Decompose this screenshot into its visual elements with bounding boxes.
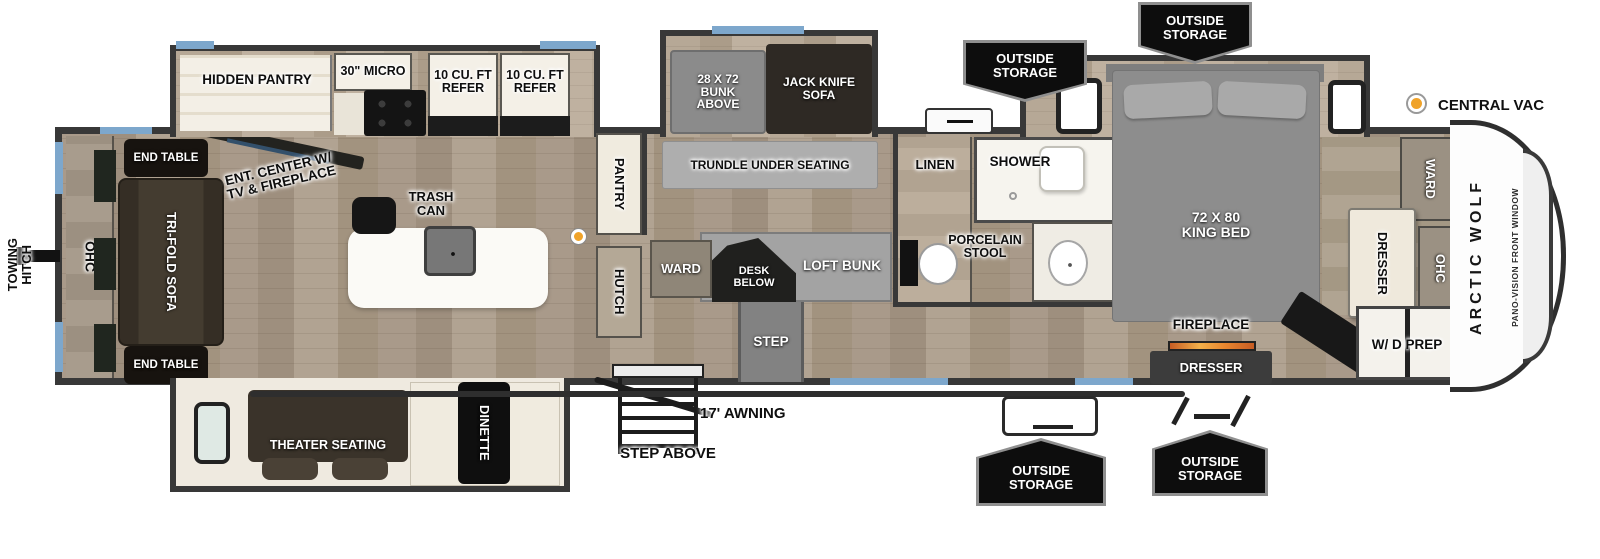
jack-knife-sofa-label: JACK KNIFE SOFA bbox=[778, 76, 860, 101]
theater-footrest bbox=[332, 458, 388, 480]
shower-label-wrap: SHOWER bbox=[980, 150, 1060, 174]
entry-platform bbox=[612, 364, 704, 378]
outside-storage-label: OUTSIDE STORAGE bbox=[998, 464, 1084, 493]
end-table-top: END TABLE bbox=[124, 139, 208, 177]
outside-storage-badge-bottom-2: OUTSIDE STORAGE bbox=[1152, 430, 1268, 496]
porcelain-stool-text: PORCELAIN STOOL bbox=[938, 234, 1032, 260]
outside-storage-badge-bottom-1: OUTSIDE STORAGE bbox=[976, 438, 1106, 506]
tri-fold-sofa: TRI-FOLD SOFA bbox=[118, 178, 224, 346]
fireplace-label: FIREPLACE bbox=[1152, 318, 1270, 332]
linen-label-wrap: LINEN bbox=[898, 150, 972, 180]
step-label: STEP bbox=[753, 335, 788, 349]
bunk-ward: WARD bbox=[650, 240, 712, 298]
island-sink bbox=[424, 226, 476, 276]
theater-label-wrap: THEATER SEATING bbox=[248, 434, 408, 458]
step-above-label: STEP ABOVE bbox=[608, 446, 728, 462]
loft-bunk-label-wrap: LOFT BUNK bbox=[796, 248, 888, 284]
fireplace-text: FIREPLACE bbox=[1152, 318, 1270, 332]
top-wall-window bbox=[100, 127, 152, 134]
floorplan-diagram: TOWING HITCH OHC END TABLE END TABLE TRI… bbox=[0, 0, 1600, 559]
fireplace-insert bbox=[1168, 341, 1256, 351]
ohc-door-panel bbox=[94, 238, 116, 290]
outside-storage-badge-face: OUTSIDE STORAGE bbox=[1141, 5, 1249, 61]
central-vac-label: CENTRAL VAC bbox=[1438, 97, 1568, 114]
interior-wall bbox=[642, 133, 647, 235]
front-window-label-wrap: PANO-VISION FRONT WINDOW bbox=[1506, 150, 1524, 364]
bed-pillow bbox=[1217, 81, 1307, 120]
front-window-band bbox=[1523, 149, 1553, 363]
trash-can bbox=[352, 197, 396, 234]
storage-door-mark bbox=[1230, 395, 1250, 427]
linen-label: LINEN bbox=[916, 158, 955, 172]
exterior-storage-door bbox=[1002, 396, 1098, 436]
towing-hitch-label: TOWING HITCH bbox=[0, 210, 40, 320]
king-bed-label: 72 X 80 KING BED bbox=[1180, 210, 1252, 239]
microwave: 30" MICRO bbox=[334, 53, 412, 91]
vanity-sink bbox=[1048, 240, 1088, 286]
brand-label-wrap: ARCTIC WOLF bbox=[1462, 135, 1492, 379]
bedroom-dresser: DRESSER bbox=[1348, 208, 1416, 318]
hutch-counter: HUTCH bbox=[596, 246, 642, 338]
trundle: TRUNDLE UNDER SEATING bbox=[662, 141, 878, 189]
trash-can-label: TRASH CAN bbox=[398, 190, 464, 217]
step-above-text: STEP ABOVE bbox=[608, 446, 728, 462]
hidden-pantry-label-wrap: HIDDEN PANTRY bbox=[182, 58, 332, 102]
towing-hitch-text-2: HITCH bbox=[20, 245, 34, 285]
end-table-bottom-label: END TABLE bbox=[134, 359, 199, 371]
rear-wall-window bbox=[55, 142, 63, 194]
bedroom-ward-label: WARD bbox=[1423, 159, 1437, 199]
rear-wall-window bbox=[55, 322, 63, 372]
microwave-label: 30" MICRO bbox=[341, 65, 406, 78]
central-vac-text: CENTRAL VAC bbox=[1438, 97, 1568, 114]
front-window-label: PANO-VISION FRONT WINDOW bbox=[1510, 188, 1520, 327]
bathroom-wall-bottom bbox=[893, 302, 1119, 307]
theater-footrest bbox=[262, 458, 318, 480]
outside-storage-badge-face: OUTSIDE STORAGE bbox=[1155, 433, 1265, 493]
king-bed-label-wrap: 72 X 80 KING BED bbox=[1176, 190, 1256, 260]
theater-sofa: THEATER SEATING bbox=[248, 390, 408, 462]
shower-drain bbox=[1009, 192, 1017, 200]
pantry-label: PANTRY bbox=[612, 158, 626, 210]
jack-knife-sofa: JACK KNIFE SOFA bbox=[766, 44, 872, 134]
tri-fold-sofa-label: TRI-FOLD SOFA bbox=[164, 212, 178, 312]
refrigerator-1-door bbox=[428, 116, 498, 136]
exterior-storage-door bbox=[925, 108, 993, 134]
kitchen-slide-window bbox=[176, 41, 214, 49]
hidden-pantry-label: HIDDEN PANTRY bbox=[202, 73, 312, 87]
bunk-above-label: 28 X 72 BUNK ABOVE bbox=[686, 73, 750, 111]
central-vac-outlet-dot bbox=[571, 229, 586, 244]
refrigerator-2-label: 10 CU. FT REFER bbox=[502, 69, 568, 95]
hutch-label: HUTCH bbox=[612, 269, 626, 315]
bunk-slide-window bbox=[712, 26, 804, 34]
storage-door-mark bbox=[1171, 397, 1189, 426]
storage-door-handle bbox=[1194, 414, 1230, 419]
kitchen-slide-window bbox=[540, 41, 596, 49]
theater-seating-label: THEATER SEATING bbox=[270, 439, 386, 452]
step-corridor: STEP bbox=[738, 302, 804, 382]
desk-below-label: DESK BELOW bbox=[726, 266, 782, 289]
cooktop bbox=[364, 90, 426, 136]
bedroom-dresser-label: DRESSER bbox=[1375, 232, 1389, 295]
ohc-door-panel bbox=[94, 150, 116, 202]
refrigerator-2: 10 CU. FT REFER bbox=[500, 53, 570, 136]
central-vac-dot bbox=[1408, 95, 1425, 112]
pantry-cabinet: PANTRY bbox=[596, 133, 642, 235]
outside-storage-label: OUTSIDE STORAGE bbox=[982, 52, 1068, 81]
storage-door-handle bbox=[1033, 425, 1073, 429]
slide-window bbox=[194, 402, 230, 464]
storage-door-handle bbox=[947, 120, 973, 123]
awning-text: 17' AWNING bbox=[700, 406, 820, 422]
bath-vanity bbox=[1032, 222, 1116, 302]
outside-storage-badge-face: OUTSIDE STORAGE bbox=[979, 441, 1103, 503]
dinette-table: DINETTE bbox=[458, 382, 510, 484]
refrigerator-2-door bbox=[500, 116, 570, 136]
wd-prep-text: W/ D PREP bbox=[1348, 338, 1466, 352]
awning-label: 17' AWNING bbox=[700, 406, 820, 422]
bedroom-ohc-label: OHC bbox=[1433, 254, 1447, 283]
bottom-wall-window bbox=[830, 378, 948, 385]
dinette-label: DINETTE bbox=[477, 405, 491, 461]
front-dresser-label: DRESSER bbox=[1180, 361, 1243, 375]
trash-can-text: TRASH CAN bbox=[398, 190, 464, 217]
bunk-ward-label: WARD bbox=[661, 262, 701, 276]
ohc-door-panel bbox=[94, 324, 116, 372]
outside-storage-label: OUTSIDE STORAGE bbox=[1152, 14, 1238, 43]
outside-storage-label: OUTSIDE STORAGE bbox=[1167, 455, 1253, 484]
bunk-above: 28 X 72 BUNK ABOVE bbox=[670, 50, 766, 134]
shower-label: SHOWER bbox=[990, 155, 1051, 169]
front-dresser: DRESSER bbox=[1150, 351, 1272, 384]
toilet-tank bbox=[900, 240, 918, 286]
wd-prep-label: W/ D PREP bbox=[1348, 338, 1466, 352]
porcelain-stool-label: PORCELAIN STOOL bbox=[938, 234, 1032, 260]
bedroom-window-right bbox=[1328, 80, 1366, 134]
brand-label: ARCTIC WOLF bbox=[1468, 179, 1486, 335]
loft-bunk-label: LOFT BUNK bbox=[803, 259, 881, 273]
trundle-label: TRUNDLE UNDER SEATING bbox=[690, 159, 849, 172]
end-table-top-label: END TABLE bbox=[134, 152, 199, 164]
bed-pillow bbox=[1123, 81, 1213, 120]
refrigerator-1: 10 CU. FT REFER bbox=[428, 53, 498, 136]
refrigerator-1-label: 10 CU. FT REFER bbox=[430, 69, 496, 95]
bottom-wall-window bbox=[1075, 378, 1133, 385]
